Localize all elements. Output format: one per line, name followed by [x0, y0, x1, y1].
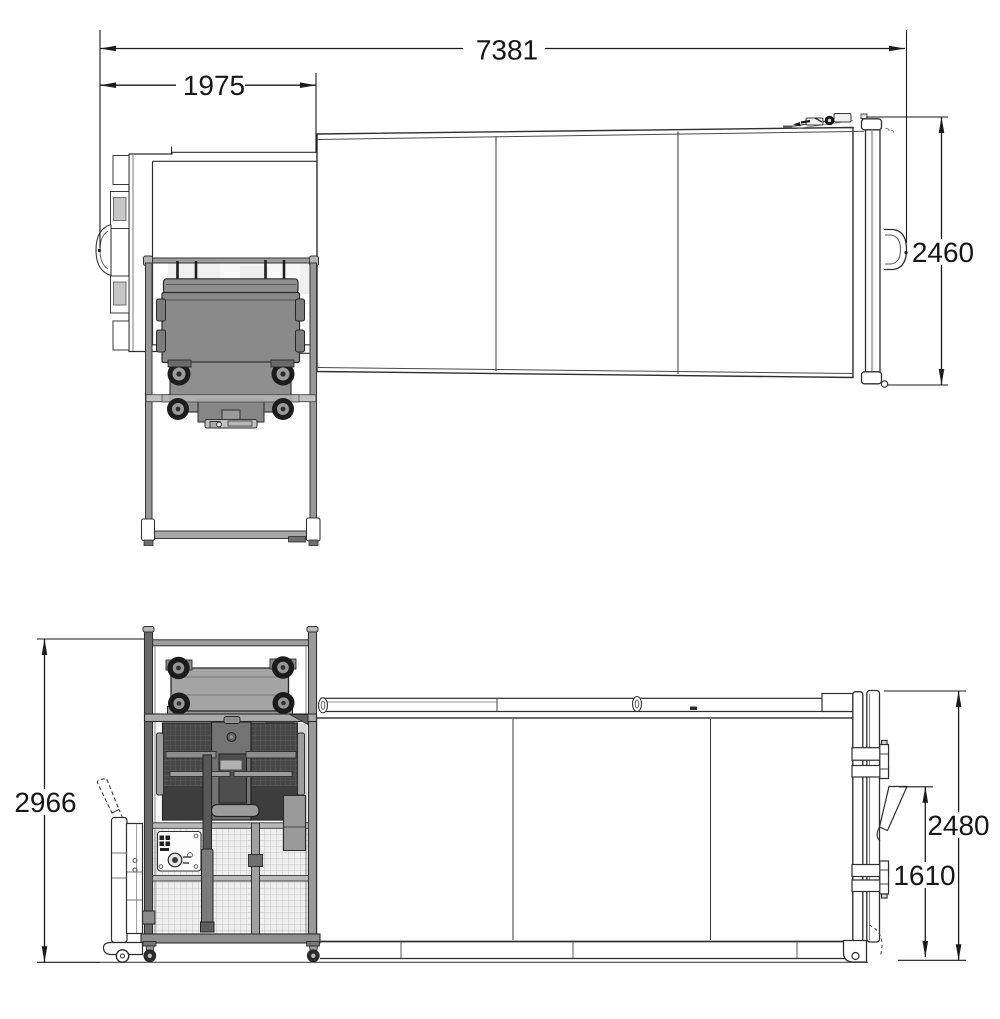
svg-text:7381: 7381	[476, 35, 538, 66]
svg-text:2966: 2966	[14, 787, 76, 818]
svg-text:1975: 1975	[183, 70, 245, 101]
svg-text:1610: 1610	[893, 860, 955, 891]
svg-text:2460: 2460	[912, 237, 974, 268]
svg-text:2480: 2480	[927, 810, 989, 841]
